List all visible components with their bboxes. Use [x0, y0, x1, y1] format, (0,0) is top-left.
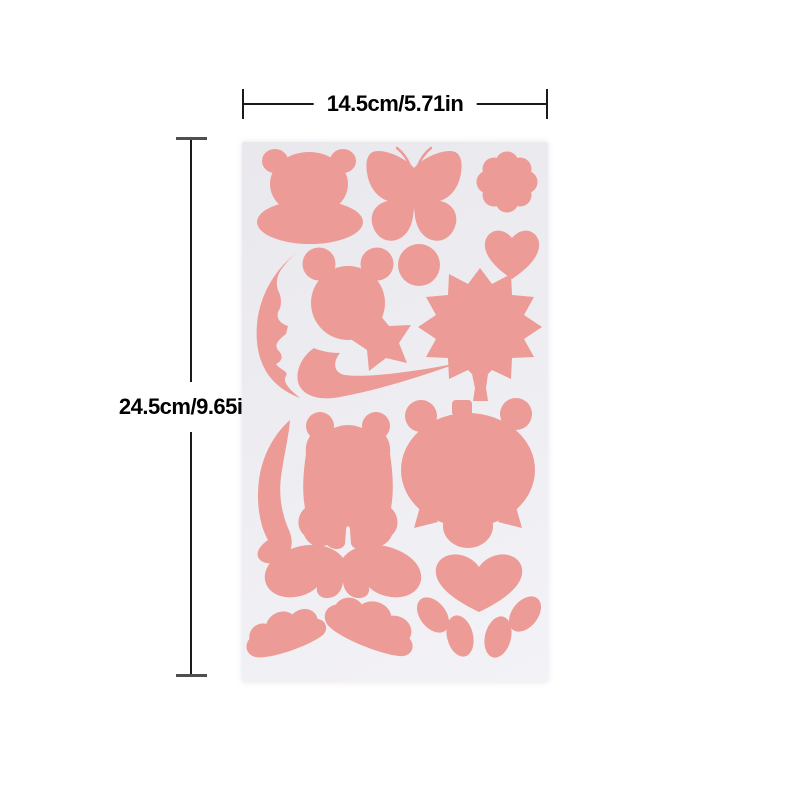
product-image: 14.5cm/5.71in 24.5cm/9.65in: [0, 0, 800, 800]
height-dimension-annotation: 24.5cm/9.65in: [176, 137, 207, 677]
cloud-left-sticker: [242, 599, 330, 665]
teddy-bear-sticker: [298, 412, 397, 549]
paw-pad-sticker: [436, 554, 522, 612]
width-dimension-annotation: 14.5cm/5.71in: [242, 89, 548, 119]
flower-sticker: [477, 152, 538, 213]
width-dim-right-tick: [546, 89, 548, 119]
mustache-sticker: [265, 545, 421, 598]
sticker-shapes-svg: [242, 142, 548, 682]
crescent-moon-face-sticker: [257, 252, 300, 398]
dot-sticker: [398, 244, 440, 286]
monkey-face-sticker: [257, 149, 363, 244]
width-dimension-label: 14.5cm/5.71in: [314, 91, 477, 117]
sticker-sheet: [242, 142, 548, 682]
cloud-right-sticker: [319, 586, 423, 663]
heart-sticker: [485, 231, 539, 279]
height-dim-bottom-tick: [176, 674, 207, 677]
maple-leaf-sticker: [418, 268, 542, 401]
owl-sticker: [401, 398, 535, 548]
curved-leaf-sticker: [258, 420, 292, 563]
height-dimension-label: 24.5cm/9.65in: [115, 382, 260, 432]
butterfly-sticker: [366, 148, 461, 241]
